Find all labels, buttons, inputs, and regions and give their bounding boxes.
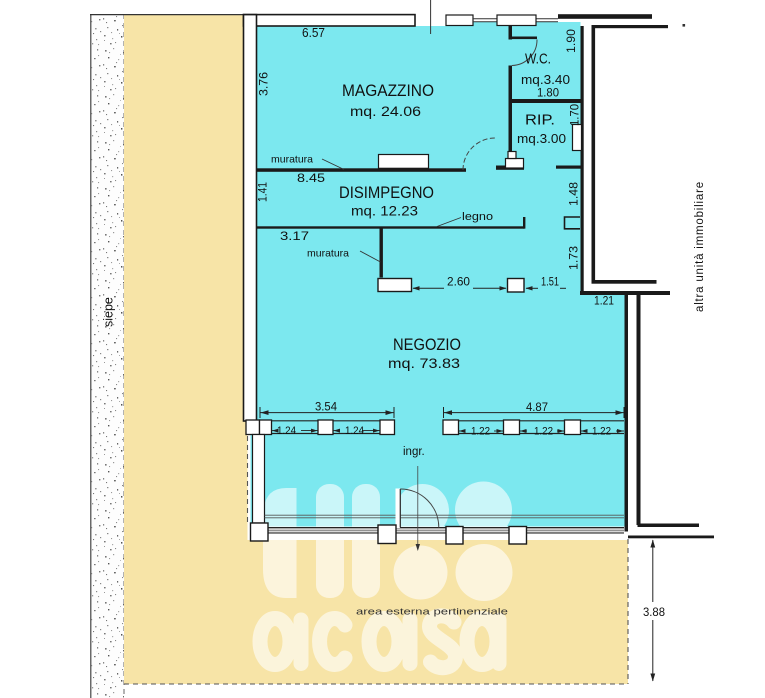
svg-text:1.22: 1.22 bbox=[592, 426, 611, 438]
svg-text:muratura: muratura bbox=[307, 248, 349, 260]
svg-text:1.21: 1.21 bbox=[594, 294, 614, 308]
svg-text:mq.3.00: mq.3.00 bbox=[517, 131, 566, 146]
svg-text:NEGOZIO: NEGOZIO bbox=[393, 336, 461, 354]
svg-text:1.22: 1.22 bbox=[471, 426, 490, 438]
svg-text:2.60: 2.60 bbox=[447, 275, 470, 289]
svg-text:altra unità immobiliare: altra unità immobiliare bbox=[694, 181, 706, 312]
svg-text:RIP.: RIP. bbox=[525, 112, 555, 129]
svg-text:1.48: 1.48 bbox=[569, 182, 581, 206]
svg-text:siepe: siepe bbox=[102, 297, 116, 327]
svg-text:1.51: 1.51 bbox=[541, 275, 559, 289]
svg-text:3.54: 3.54 bbox=[315, 400, 337, 414]
svg-text:MAGAZZINO: MAGAZZINO bbox=[342, 82, 434, 100]
svg-text:8.45: 8.45 bbox=[297, 171, 325, 185]
svg-text:mq. 12.23: mq. 12.23 bbox=[351, 204, 418, 219]
svg-text:3.88: 3.88 bbox=[643, 605, 665, 619]
svg-text:1.24: 1.24 bbox=[277, 425, 296, 437]
svg-text:W.C.: W.C. bbox=[525, 51, 551, 68]
svg-text:legno: legno bbox=[462, 211, 493, 223]
svg-text:muratura: muratura bbox=[271, 154, 313, 166]
svg-text:1.24: 1.24 bbox=[345, 425, 364, 437]
svg-text:1.80: 1.80 bbox=[537, 86, 559, 100]
svg-text:1.70: 1.70 bbox=[570, 104, 582, 126]
svg-text:3.76: 3.76 bbox=[259, 72, 271, 96]
svg-text:4.87: 4.87 bbox=[526, 400, 548, 414]
svg-text:1.90: 1.90 bbox=[566, 29, 578, 53]
svg-text:1.22: 1.22 bbox=[534, 426, 553, 438]
svg-text:1.41: 1.41 bbox=[258, 182, 270, 202]
svg-text:3.17: 3.17 bbox=[280, 229, 309, 243]
svg-text:1.73: 1.73 bbox=[569, 246, 581, 270]
svg-text:mq. 73.83: mq. 73.83 bbox=[388, 355, 460, 371]
svg-text:6.57: 6.57 bbox=[302, 26, 325, 40]
svg-text:area esterna pertinenziale: area esterna pertinenziale bbox=[356, 607, 508, 618]
svg-text:DISIMPEGNO: DISIMPEGNO bbox=[339, 184, 434, 202]
svg-text:mq. 24.06: mq. 24.06 bbox=[350, 104, 421, 119]
svg-text:ingr.: ingr. bbox=[403, 446, 425, 458]
